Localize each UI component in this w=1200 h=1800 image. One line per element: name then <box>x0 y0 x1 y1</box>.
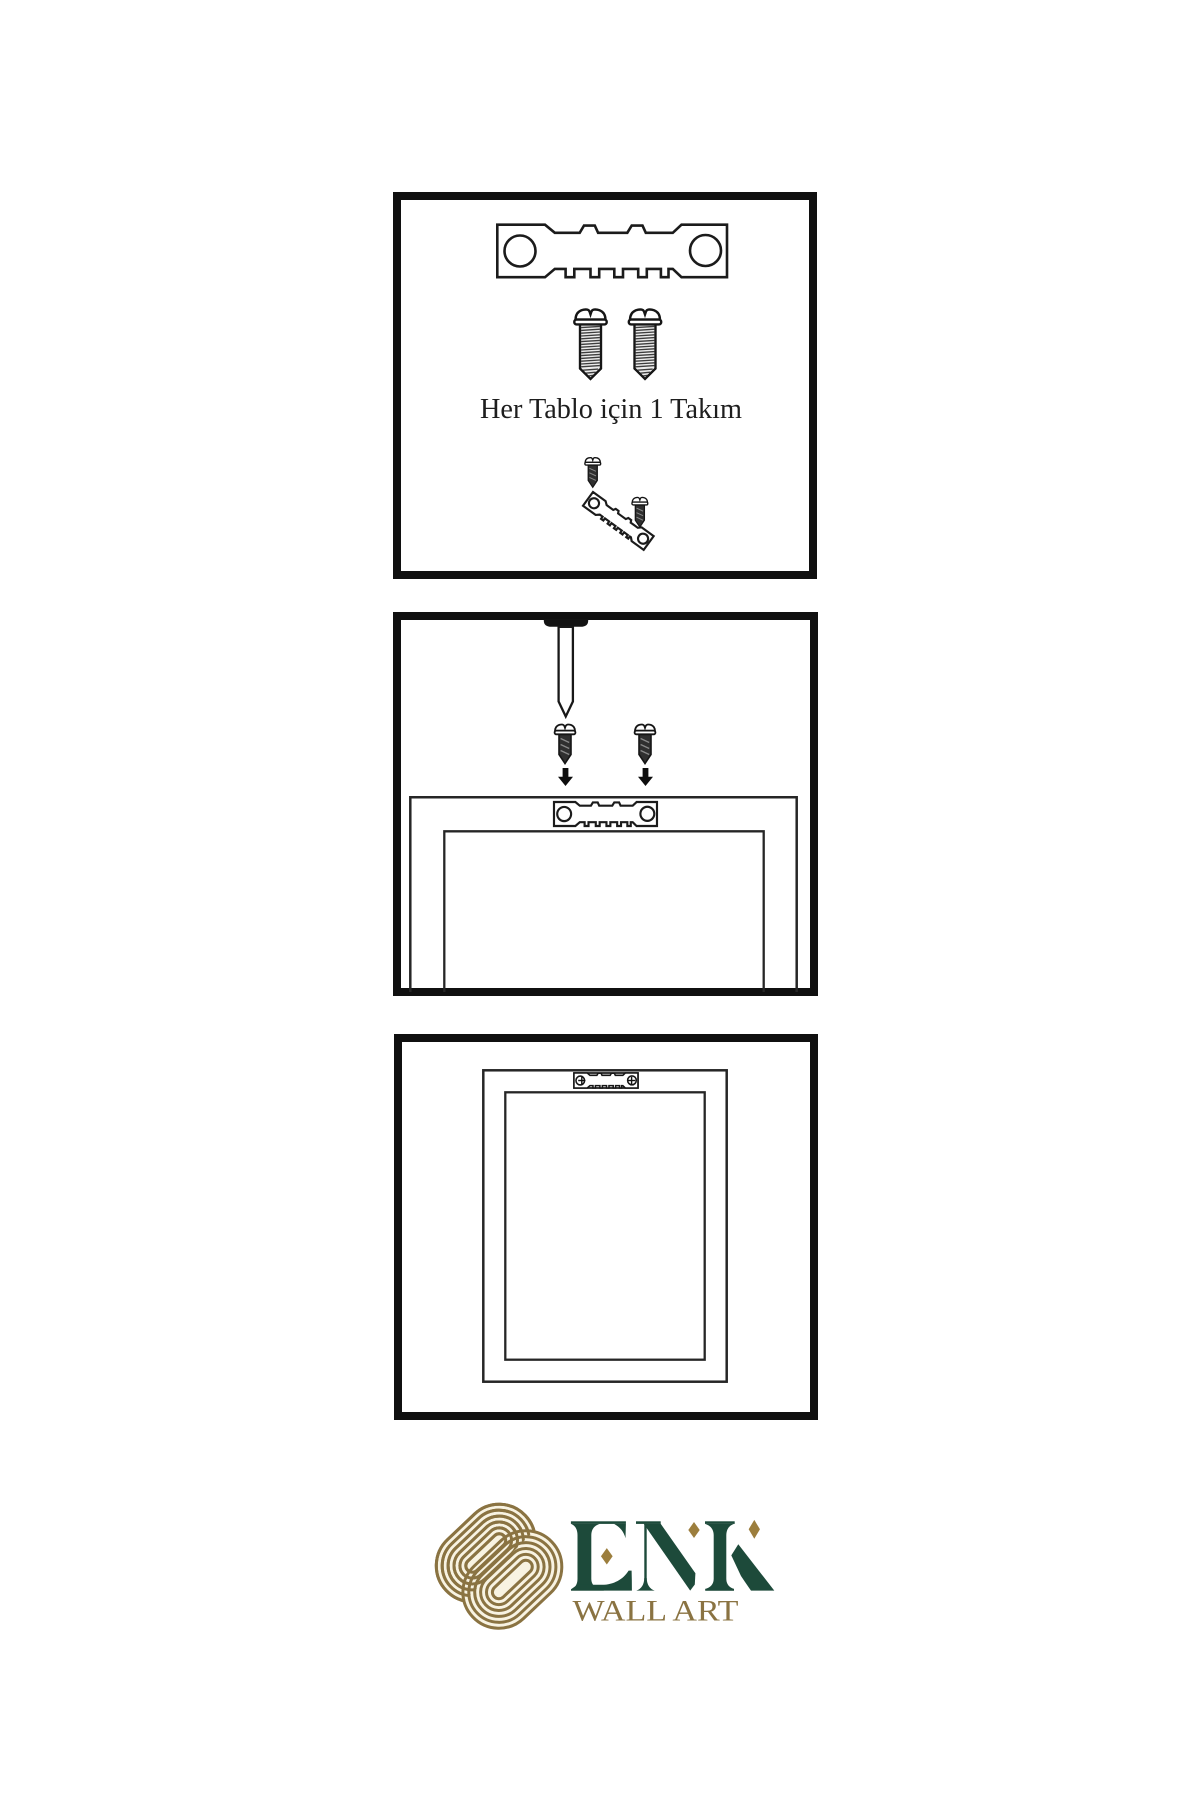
svg-text:Her Tablo için 1 Takım: Her Tablo için 1 Takım <box>480 393 742 425</box>
svg-text:WALL ART: WALL ART <box>573 1595 739 1628</box>
